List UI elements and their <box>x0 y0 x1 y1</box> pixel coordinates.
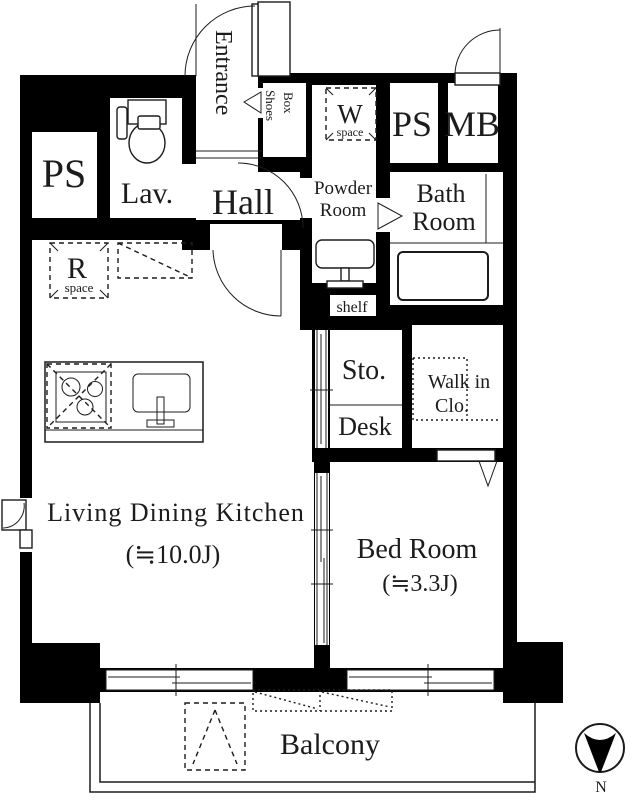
stove-icon <box>56 372 106 422</box>
room-label-ps-left: PS <box>42 151 87 196</box>
room-label-balcony: Balcony <box>280 728 380 761</box>
room-label-shoes-box-1: Shoes <box>263 90 278 121</box>
sink-icon <box>133 374 190 427</box>
room-label-shelf: shelf <box>336 299 368 316</box>
room-label-meter-box: MB <box>444 104 500 144</box>
room-label-bath-2: Room <box>412 207 476 236</box>
ldk-door <box>213 250 281 316</box>
closet-door-mark <box>437 450 497 486</box>
room-label-lavatory: Lav. <box>121 177 173 210</box>
room-label-bedroom-size: (≒3.3J) <box>382 571 457 597</box>
north-compass-icon <box>576 724 624 772</box>
meter-box-door <box>455 28 500 85</box>
room-label-bath-1: Bath <box>416 179 465 208</box>
room-label-walkin-2: Clo. <box>435 395 469 417</box>
room-label-walkin-1: Walk in <box>428 371 490 393</box>
room-label-washer-space-sub: space <box>337 125 364 139</box>
room-label-shoes-box-2: Box <box>281 92 296 114</box>
floor-plan: PS Lav. Entrance Shoes Box W space PS MB… <box>0 0 631 800</box>
room-label-ldk-size: (≒10.0J) <box>126 540 221 569</box>
cabinet-space-box <box>118 243 192 278</box>
room-label-powder-2: Room <box>320 200 367 221</box>
room-label-hall: Hall <box>212 182 274 222</box>
entrance-door <box>185 2 290 76</box>
room-label-powder-1: Powder <box>314 178 373 199</box>
kitchen-counter <box>45 362 203 442</box>
room-label-desk: Desk <box>338 412 391 441</box>
escape-hatch <box>185 703 245 770</box>
room-label-refrigerator-sub: space <box>65 280 94 295</box>
room-label-ps-right: PS <box>392 104 432 144</box>
room-label-storage: Sto. <box>342 355 386 386</box>
compass-label: N <box>595 779 607 796</box>
room-label-ldk: Living Dining Kitchen <box>47 498 305 527</box>
room-label-entrance: Entrance <box>210 30 236 115</box>
floor-plan-page: PS Lav. Entrance Shoes Box W space PS MB… <box>0 0 631 800</box>
eave-overhang <box>253 690 392 711</box>
room-label-bedroom: Bed Room <box>357 534 478 565</box>
